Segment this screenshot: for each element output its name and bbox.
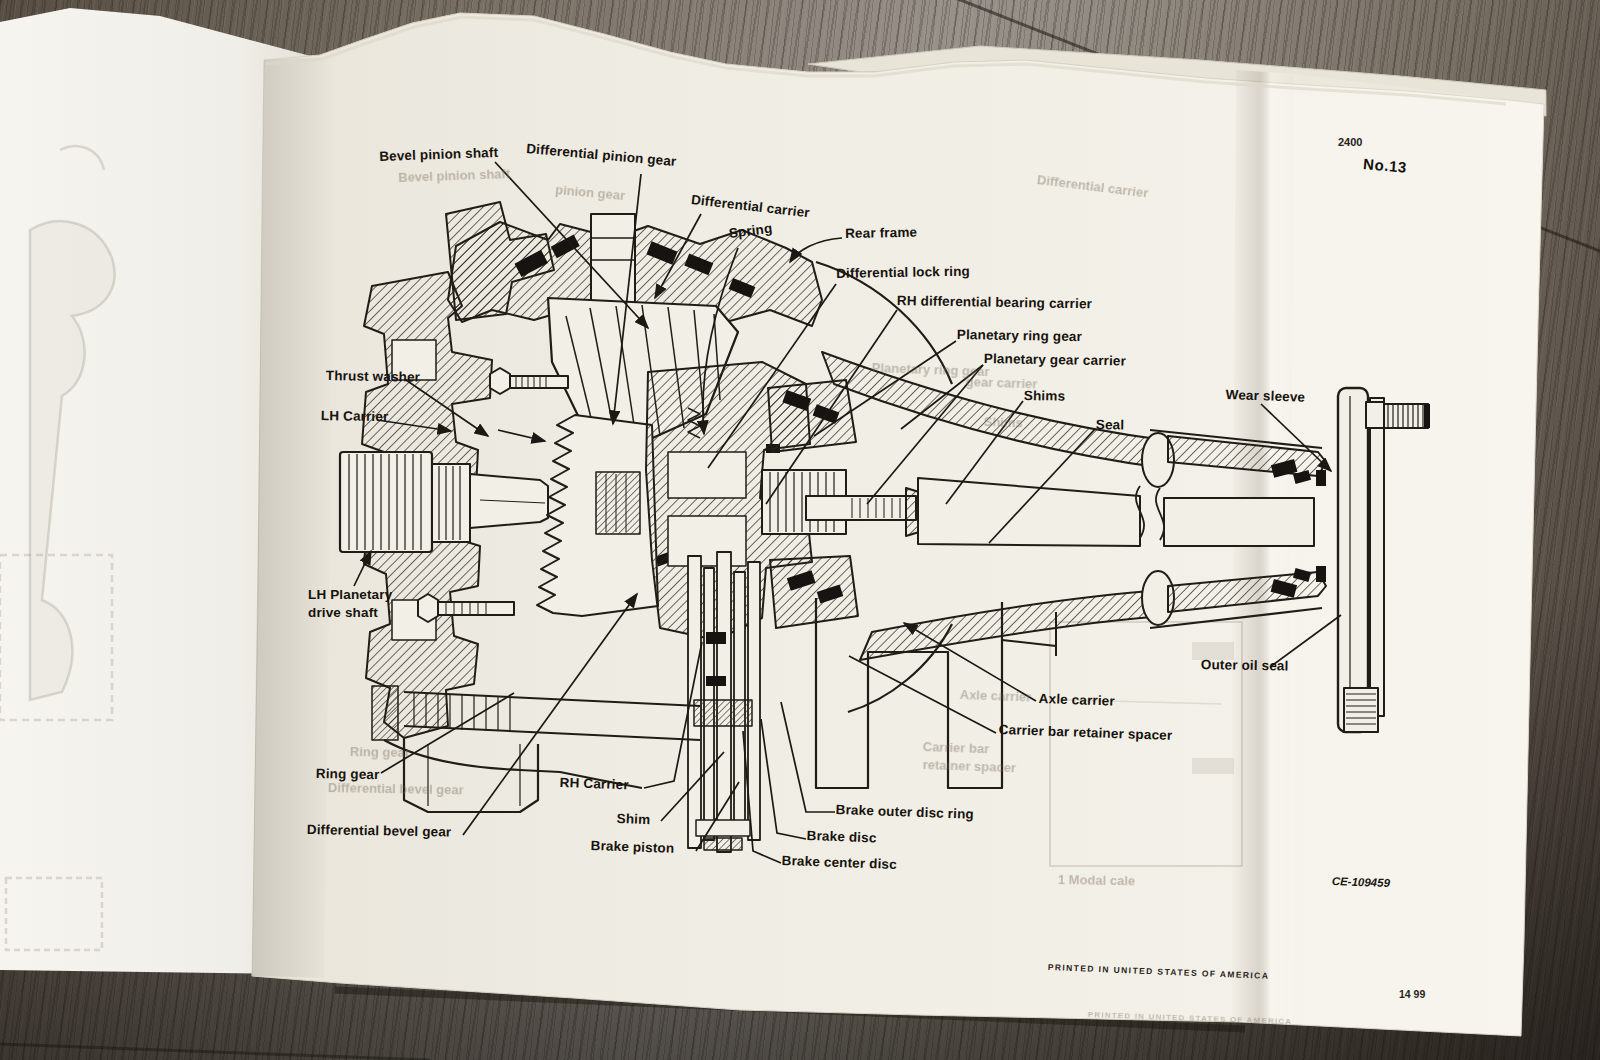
label-planetary-gear-carrier: Planetary gear carrier [984, 351, 1126, 368]
label-differential-lock-ring: Differential lock ring [836, 264, 970, 281]
label-lh-planetary-drive-shaft: LH Planetary drive shaft [308, 586, 402, 621]
ghost-text: 1 Modal cale [1058, 872, 1136, 888]
label-lh-carrier: LH Carrier [321, 408, 389, 424]
label-planetary-ring-gear: Planetary ring gear [957, 327, 1082, 344]
ghost-text: Axle carrier [959, 687, 1031, 704]
ghost-text: Differential bevel gear [328, 780, 464, 797]
label-seal: Seal [1096, 417, 1125, 432]
label-brake-disc: Brake disc [806, 828, 876, 845]
photo-of-open-manual: Bevel pinion shaft pinion gear Different… [0, 0, 1600, 1060]
text-drawing-code: CE-109459 [1332, 875, 1391, 889]
ghost-text: Ring gear [350, 744, 410, 760]
text-bottom-number: 14 99 [1399, 988, 1425, 1000]
text-page-number: 2400 [1338, 136, 1362, 148]
label-rear-frame: Rear frame [845, 225, 917, 241]
label-shim: Shim [616, 811, 650, 827]
ghost-text: Carrier bar [922, 739, 989, 756]
label-shims: Shims [1024, 388, 1066, 404]
ghost-text: Shims [983, 414, 1023, 430]
label-outer-oil-seal: Outer oil seal [1201, 657, 1289, 674]
book-and-diagram-art [0, 0, 1600, 1060]
label-differential-bevel-gear: Differential bevel gear [307, 822, 452, 840]
label-rh-carrier: RH Carrier [559, 775, 629, 792]
label-ring-gear: Ring gear [316, 766, 380, 782]
label-axle-carrier: Axle carrier [1038, 691, 1115, 709]
label-wear-sleeve: Wear sleeve [1225, 387, 1305, 405]
ghost-text: retainer spacer [922, 757, 1016, 775]
label-brake-piston: Brake piston [590, 838, 674, 856]
label-thrust-washer: Thrust washer [326, 368, 420, 385]
